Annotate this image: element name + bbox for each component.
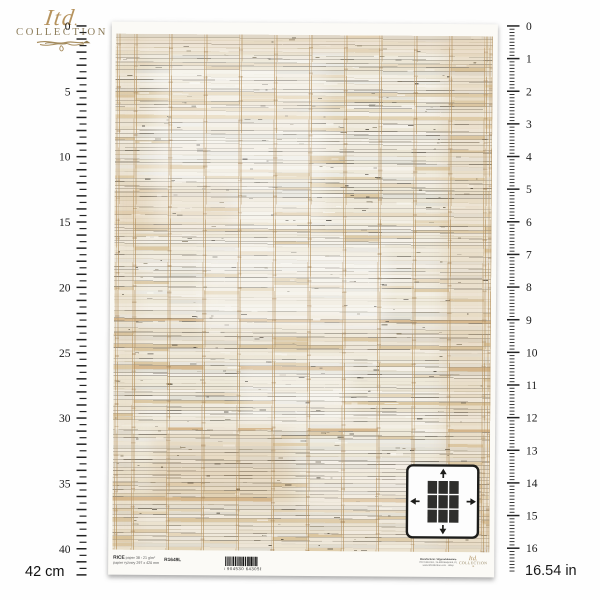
svg-text:40: 40 [59,544,71,556]
svg-text:25: 25 [59,348,71,360]
svg-text:0: 0 [65,21,71,33]
svg-text:15: 15 [526,511,538,523]
svg-text:16: 16 [526,543,538,555]
svg-text:7: 7 [526,249,532,261]
svg-text:13: 13 [526,445,538,457]
svg-text:35: 35 [59,478,71,490]
svg-text:8: 8 [526,282,532,294]
svg-text:30: 30 [59,413,71,425]
svg-text:9: 9 [526,315,532,327]
svg-text:20: 20 [59,282,71,294]
svg-text:10: 10 [59,152,71,164]
svg-text:14: 14 [526,478,538,490]
svg-text:2: 2 [526,86,532,98]
svg-text:6: 6 [526,217,532,229]
svg-text:5 904530 643058: 5 904530 643058 [224,566,261,571]
svg-text:11: 11 [526,380,537,392]
svg-text:0: 0 [526,21,532,33]
svg-text:3: 3 [526,119,532,131]
svg-text:12: 12 [526,413,538,425]
svg-text:4: 4 [526,152,532,164]
svg-text:5: 5 [65,86,71,98]
svg-text:1: 1 [526,54,532,66]
svg-text:15: 15 [59,217,71,229]
svg-text:5: 5 [526,184,532,196]
svg-text:10: 10 [526,347,538,359]
